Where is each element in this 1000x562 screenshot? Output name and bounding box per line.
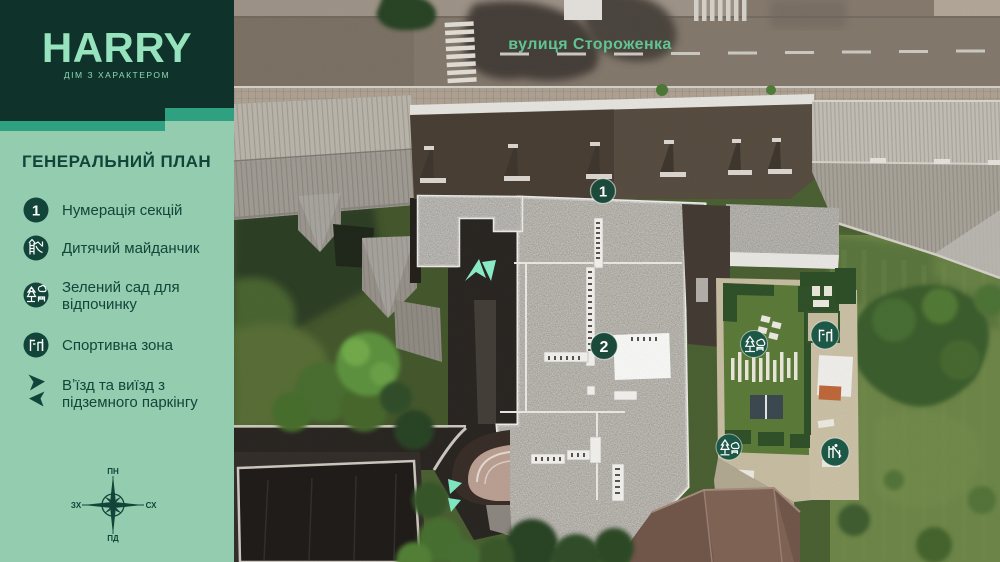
svg-text:ПН: ПН bbox=[107, 467, 119, 476]
svg-text:1: 1 bbox=[32, 203, 40, 220]
svg-text:СХ: СХ bbox=[146, 501, 157, 510]
svg-text:1: 1 bbox=[599, 184, 607, 201]
svg-text:2: 2 bbox=[600, 339, 609, 356]
svg-text:ЗХ: ЗХ bbox=[71, 501, 82, 510]
svg-text:ПД: ПД bbox=[107, 534, 119, 543]
